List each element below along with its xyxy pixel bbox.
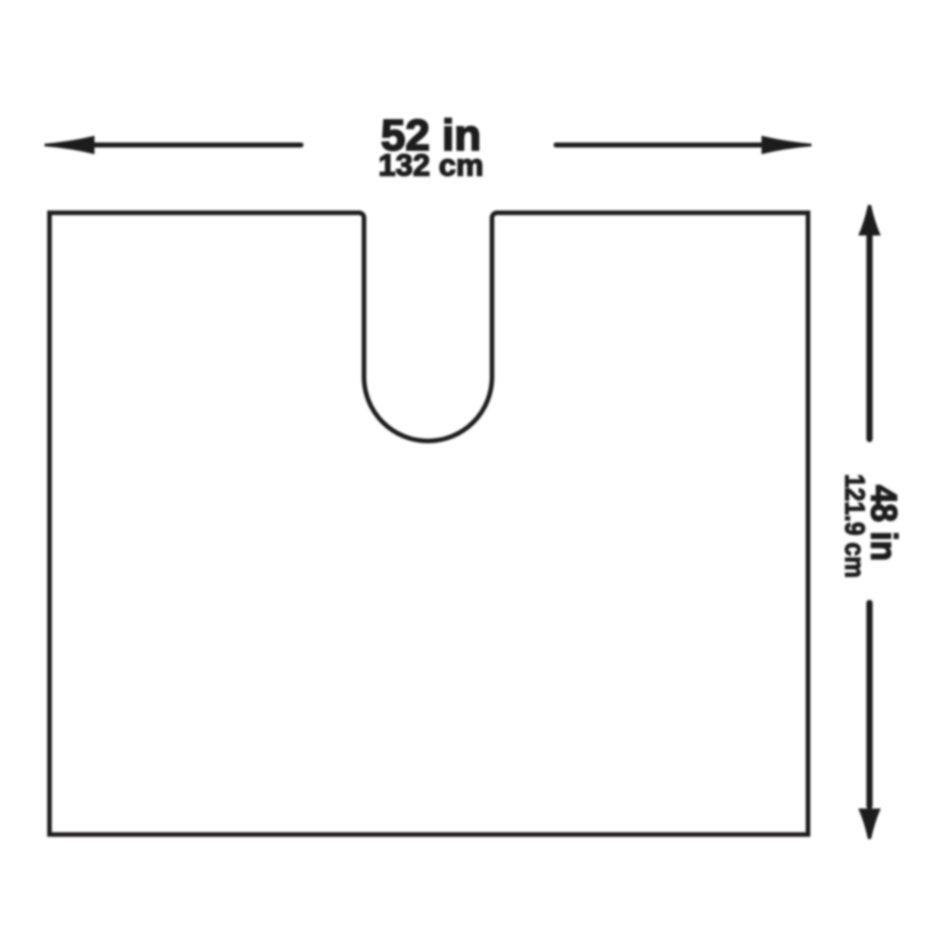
svg-text:132 cm: 132 cm [378, 148, 483, 183]
svg-text:121.9 cm: 121.9 cm [840, 474, 871, 578]
